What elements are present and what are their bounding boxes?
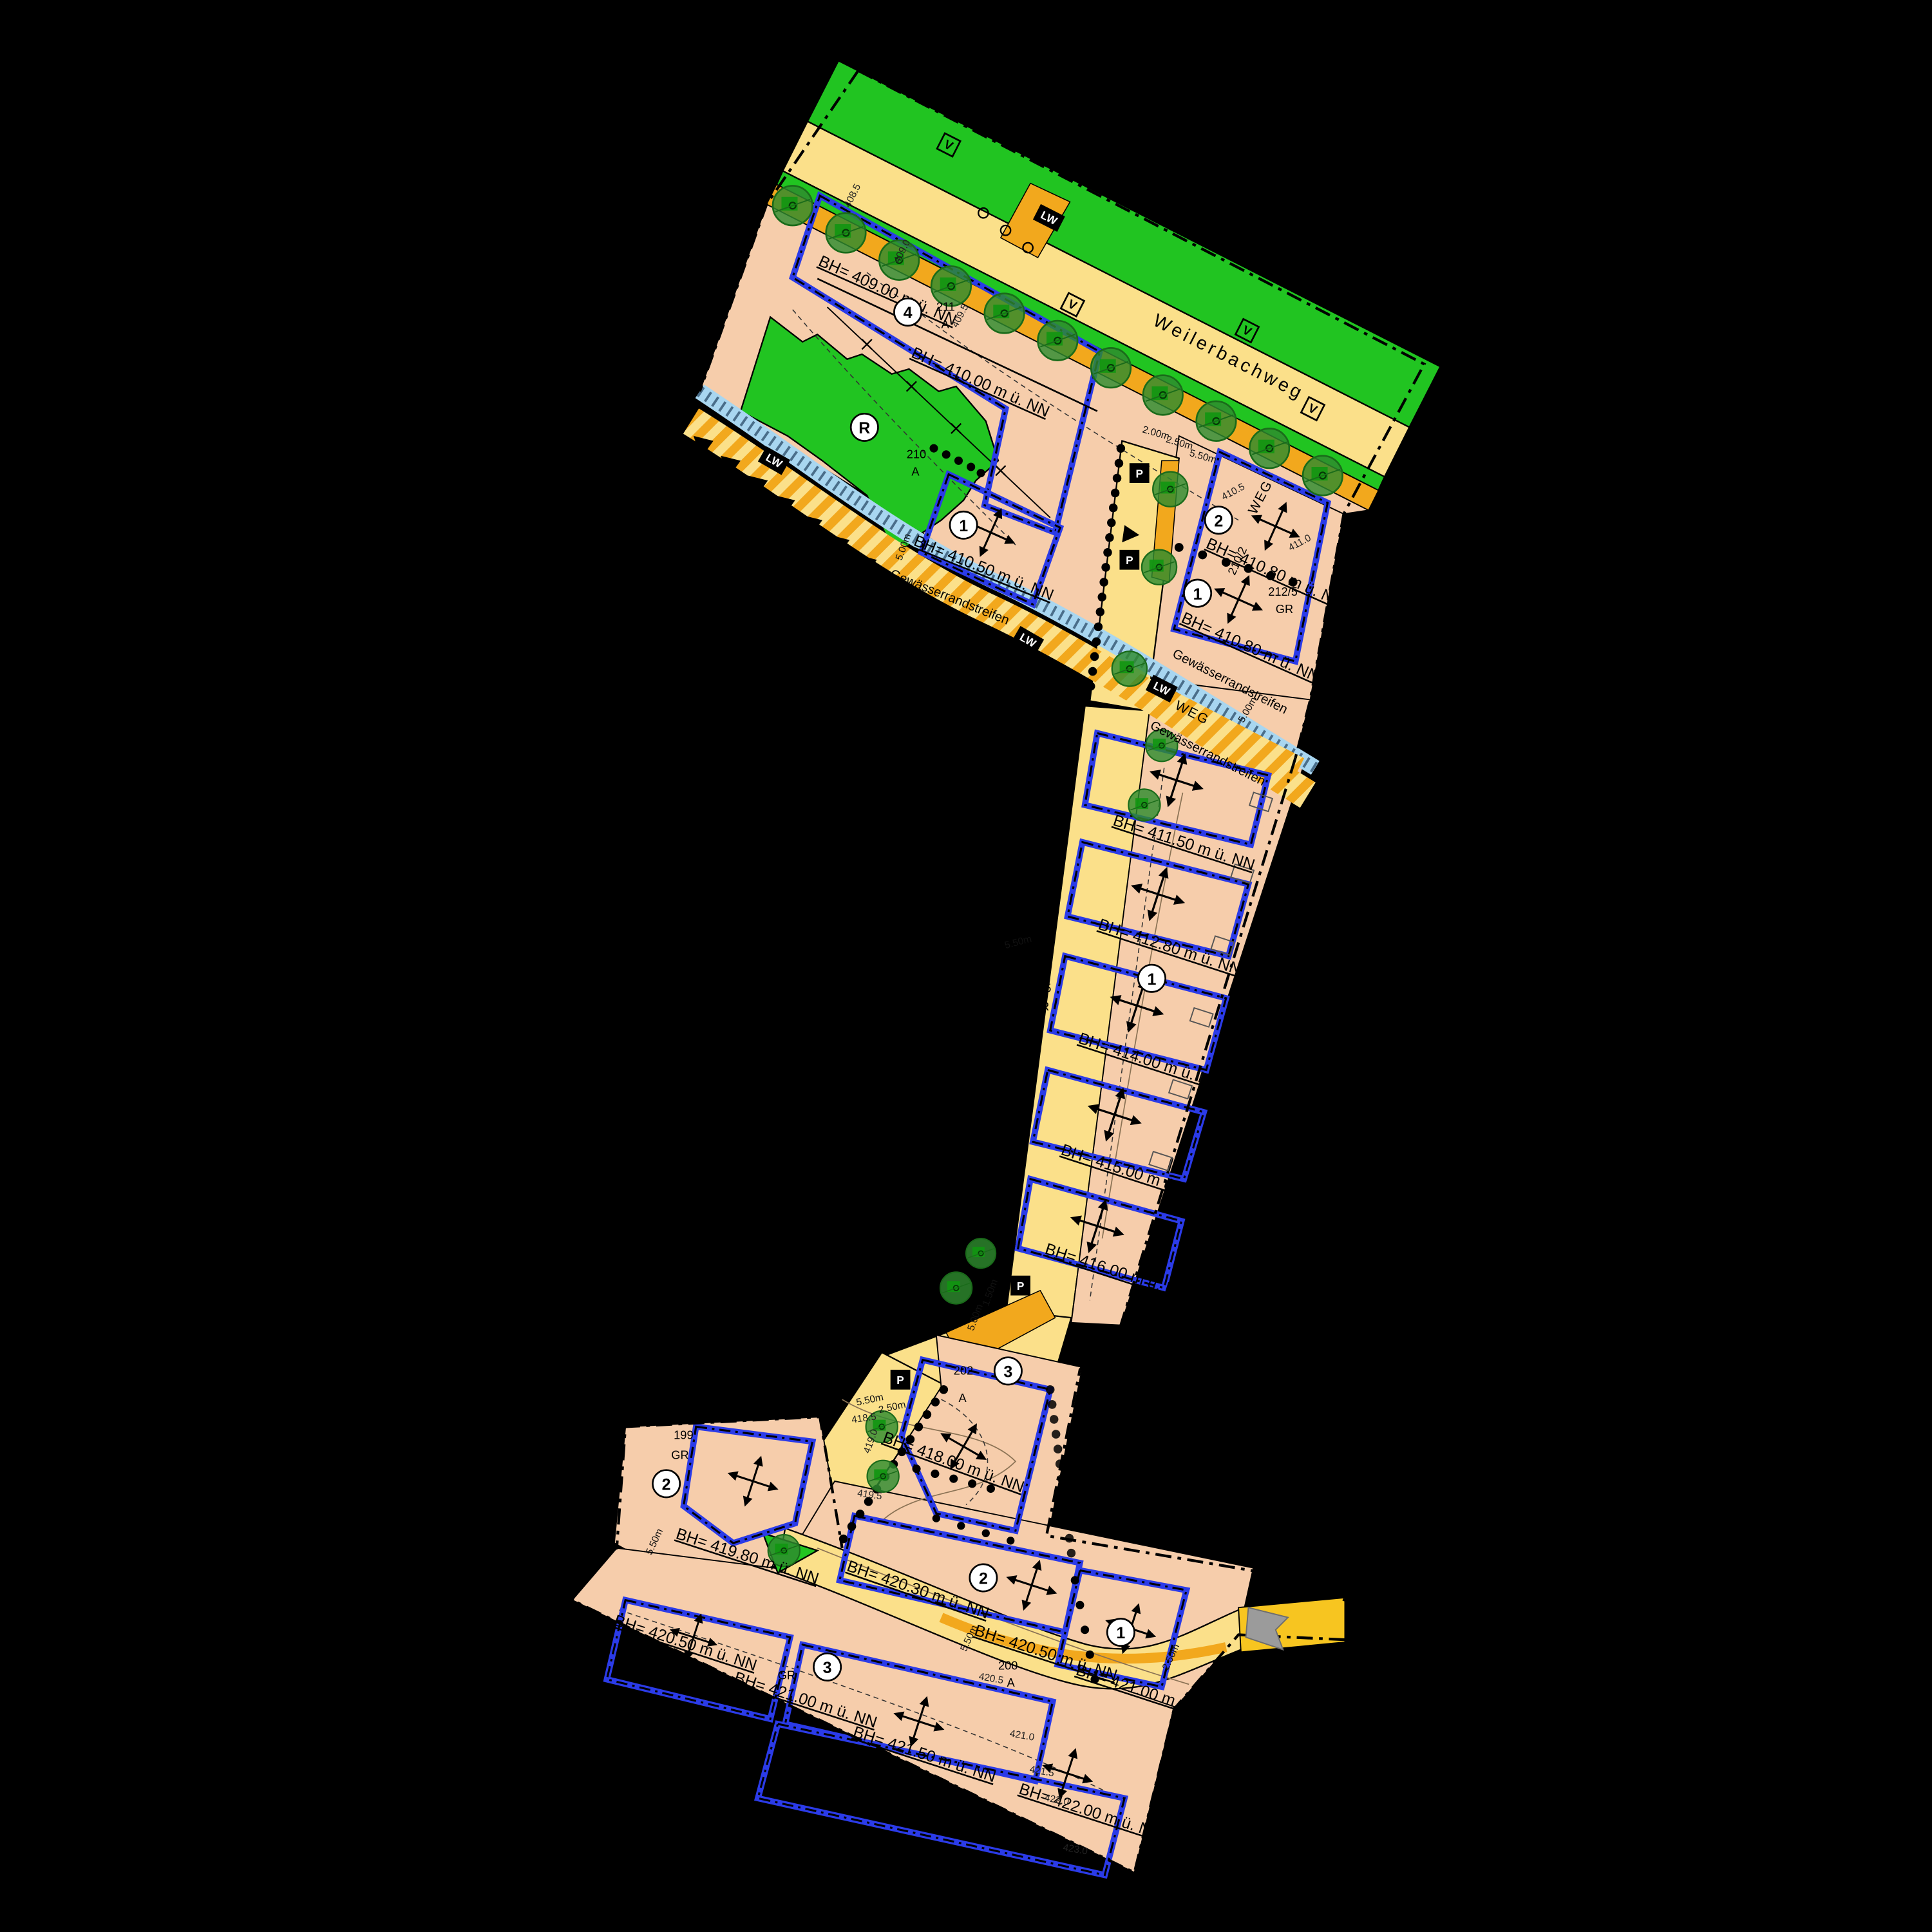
zone-circle-1c: 1 <box>1107 1618 1134 1645</box>
svg-text:GR: GR <box>1276 602 1293 616</box>
development-plan-map: P LW V <box>0 0 1932 1932</box>
zone-circle-3a: 3 <box>994 1358 1021 1385</box>
zone-circle-2c: 2 <box>970 1564 997 1591</box>
parking-marker-4 <box>891 1370 911 1390</box>
svg-text:GR: GR <box>671 1448 688 1461</box>
zone-circle-4: 4 <box>894 298 921 325</box>
zone-circle-2b: 2 <box>652 1470 679 1497</box>
svg-text:1: 1 <box>1193 585 1202 603</box>
zone-circle-R: R <box>851 413 878 440</box>
plan-canvas: P LW V <box>0 0 1932 1932</box>
svg-text:A: A <box>942 317 950 331</box>
svg-text:211: 211 <box>936 300 955 314</box>
zone-circle-2a: 2 <box>1205 507 1232 534</box>
svg-text:GR: GR <box>778 1669 795 1682</box>
svg-text:2: 2 <box>979 1570 988 1588</box>
svg-text:A: A <box>958 1391 967 1405</box>
svg-text:212/5: 212/5 <box>1268 585 1298 598</box>
svg-text:GR: GR <box>1032 999 1049 1013</box>
svg-text:205: 205 <box>1032 981 1051 994</box>
parking-marker-2 <box>1119 550 1139 570</box>
zone-circle-1a: 1 <box>950 511 977 538</box>
svg-text:202: 202 <box>954 1364 973 1378</box>
svg-text:200: 200 <box>998 1658 1018 1672</box>
svg-text:210: 210 <box>907 448 926 461</box>
svg-text:1: 1 <box>959 517 968 535</box>
svg-text:4: 4 <box>904 304 913 322</box>
svg-text:199: 199 <box>674 1428 693 1442</box>
svg-text:R: R <box>858 419 870 437</box>
svg-text:1: 1 <box>1116 1624 1125 1642</box>
zone-circle-3b: 3 <box>813 1653 840 1680</box>
svg-text:A: A <box>911 464 920 478</box>
svg-text:2: 2 <box>1214 512 1223 530</box>
parking-marker-1 <box>1130 463 1150 483</box>
svg-text:3: 3 <box>1003 1363 1012 1381</box>
svg-text:A: A <box>1007 1676 1015 1689</box>
svg-text:2: 2 <box>662 1475 671 1493</box>
zone-circle-1mid: 1 <box>1138 965 1165 992</box>
zone-circle-1b: 1 <box>1184 580 1211 607</box>
svg-text:1: 1 <box>1148 971 1157 989</box>
parking-marker-3 <box>1010 1276 1030 1296</box>
svg-text:3: 3 <box>823 1659 832 1677</box>
